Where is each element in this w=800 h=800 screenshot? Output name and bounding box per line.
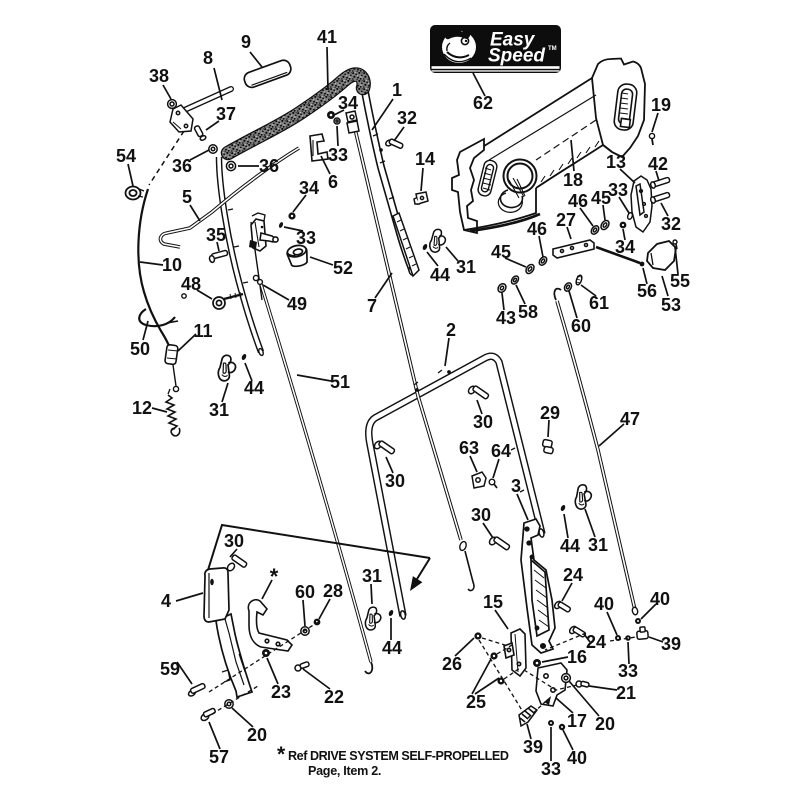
svg-text:49: 49: [287, 294, 307, 314]
svg-text:61: 61: [589, 293, 609, 313]
svg-text:37: 37: [216, 104, 236, 124]
svg-text:16: 16: [567, 647, 587, 667]
svg-text:34: 34: [615, 237, 635, 257]
svg-text:24: 24: [563, 565, 583, 585]
svg-text:31: 31: [588, 535, 608, 555]
svg-text:26: 26: [442, 654, 462, 674]
svg-text:22: 22: [324, 687, 344, 707]
svg-text:4: 4: [161, 591, 171, 611]
svg-text:63: 63: [459, 438, 479, 458]
svg-text:20: 20: [247, 725, 267, 745]
svg-text:60: 60: [571, 316, 591, 336]
svg-text:17: 17: [567, 711, 587, 731]
svg-text:60: 60: [295, 582, 315, 602]
svg-text:40: 40: [567, 748, 587, 768]
svg-text:18: 18: [563, 170, 583, 190]
svg-text:36: 36: [259, 156, 279, 176]
svg-text:21: 21: [616, 683, 636, 703]
svg-text:13: 13: [606, 152, 626, 172]
svg-text:56: 56: [637, 281, 657, 301]
svg-text:Speed: Speed: [488, 46, 545, 67]
svg-text:29: 29: [540, 403, 560, 423]
svg-text:46: 46: [568, 191, 588, 211]
svg-text:24: 24: [586, 632, 606, 652]
svg-text:11: 11: [193, 321, 212, 341]
svg-text:44: 44: [244, 378, 264, 398]
svg-text:31: 31: [209, 400, 229, 420]
svg-text:5: 5: [182, 187, 192, 207]
svg-text:34: 34: [299, 178, 319, 198]
svg-text:1: 1: [392, 80, 402, 100]
svg-text:45: 45: [591, 188, 611, 208]
svg-text:35: 35: [206, 225, 226, 245]
svg-text:44: 44: [560, 536, 580, 556]
svg-text:39: 39: [523, 737, 543, 757]
svg-text:Ref DRIVE SYSTEM SELF-PROPELLE: Ref DRIVE SYSTEM SELF-PROPELLED: [288, 749, 509, 763]
svg-text:10: 10: [162, 255, 182, 275]
svg-text:8: 8: [203, 48, 213, 68]
svg-text:54: 54: [116, 146, 136, 166]
svg-text:9: 9: [241, 32, 251, 52]
svg-text:43: 43: [496, 308, 516, 328]
svg-text:42: 42: [648, 154, 668, 174]
svg-text:57: 57: [209, 747, 229, 767]
svg-text:7: 7: [367, 296, 377, 316]
svg-text:50: 50: [130, 339, 150, 359]
svg-text:28: 28: [323, 581, 343, 601]
svg-text:6: 6: [328, 172, 338, 192]
svg-text:20: 20: [595, 714, 615, 734]
svg-text:33: 33: [328, 145, 348, 165]
svg-text:55: 55: [670, 271, 690, 291]
svg-text:12: 12: [132, 398, 152, 418]
svg-text:25: 25: [466, 692, 486, 712]
svg-text:62: 62: [473, 93, 493, 113]
svg-text:30: 30: [471, 505, 491, 525]
svg-text:19: 19: [651, 95, 671, 115]
svg-text:52: 52: [333, 258, 353, 278]
svg-text:14: 14: [415, 149, 435, 169]
svg-text:45: 45: [491, 242, 511, 262]
svg-text:31: 31: [456, 257, 476, 277]
svg-text:32: 32: [397, 108, 417, 128]
svg-text:44: 44: [382, 638, 402, 658]
svg-text:*: *: [270, 564, 279, 589]
svg-text:38: 38: [149, 66, 169, 86]
svg-text:32: 32: [661, 214, 681, 234]
svg-text:48: 48: [181, 274, 201, 294]
svg-text:59: 59: [160, 659, 180, 679]
svg-text:41: 41: [317, 27, 337, 47]
svg-text:33: 33: [541, 759, 561, 779]
svg-text:53: 53: [661, 295, 681, 315]
svg-text:40: 40: [650, 589, 670, 609]
svg-text:TM: TM: [548, 46, 557, 52]
svg-text:46: 46: [527, 219, 547, 239]
svg-text:36: 36: [172, 156, 192, 176]
svg-text:Page, Item 2.: Page, Item 2.: [308, 764, 381, 778]
svg-text:27: 27: [556, 210, 576, 230]
svg-text:*: *: [277, 743, 286, 766]
svg-text:64: 64: [491, 441, 511, 461]
svg-text:33: 33: [296, 228, 316, 248]
svg-text:33: 33: [618, 661, 638, 681]
svg-text:23: 23: [271, 682, 291, 702]
svg-text:15: 15: [483, 592, 503, 612]
svg-text:47: 47: [620, 409, 640, 429]
svg-text:44: 44: [430, 265, 450, 285]
svg-text:51: 51: [330, 372, 350, 392]
svg-text:40: 40: [594, 594, 614, 614]
svg-text:34: 34: [338, 93, 358, 113]
svg-text:31: 31: [362, 566, 382, 586]
svg-text:39: 39: [661, 634, 681, 654]
svg-text:30: 30: [473, 412, 493, 432]
svg-text:30: 30: [385, 471, 405, 491]
svg-text:2: 2: [446, 320, 456, 340]
svg-text:30: 30: [224, 531, 244, 551]
svg-text:3: 3: [511, 476, 521, 496]
svg-text:58: 58: [518, 302, 538, 322]
